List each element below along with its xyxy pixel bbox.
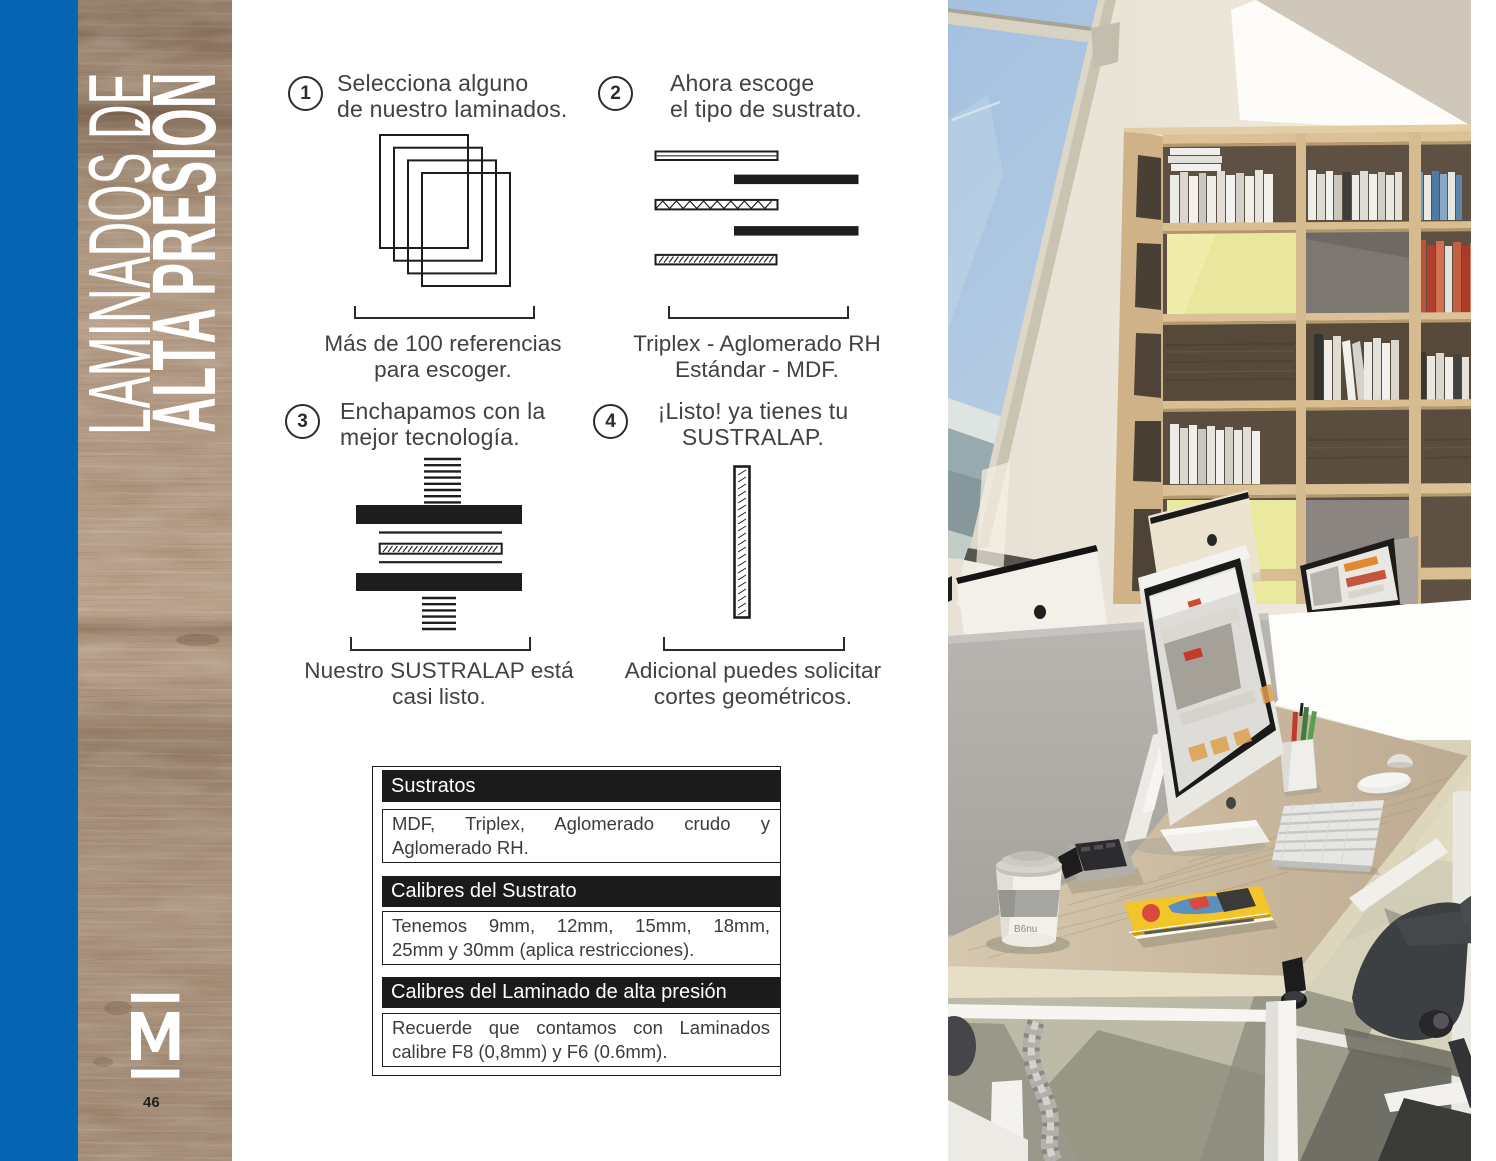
svg-text:B6nu: B6nu <box>1014 924 1037 935</box>
